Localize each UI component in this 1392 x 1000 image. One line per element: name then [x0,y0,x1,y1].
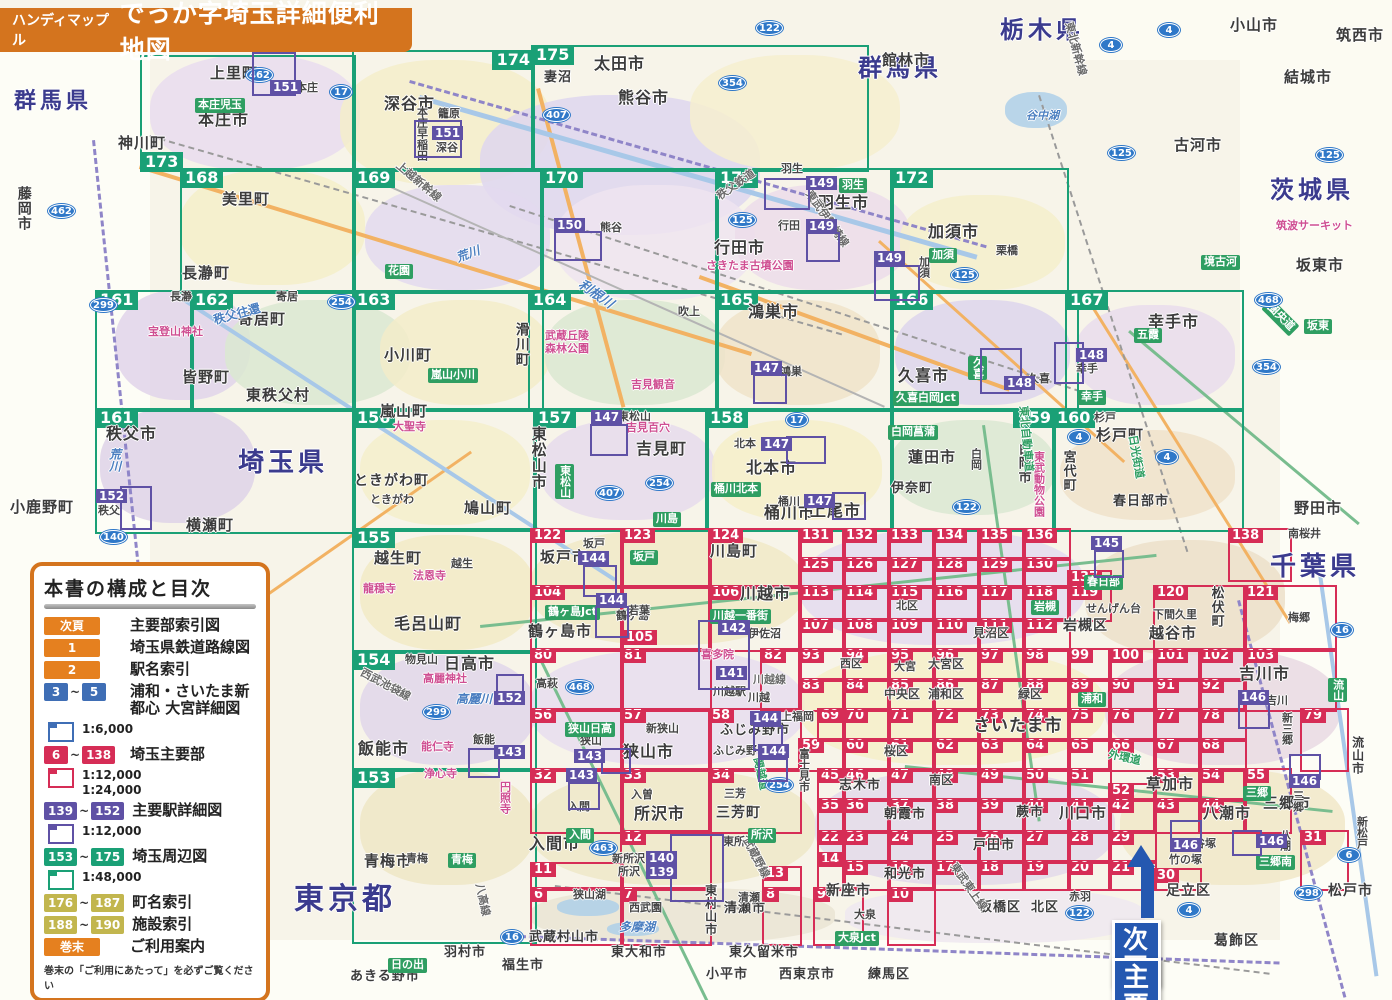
main-map-cell-129[interactable]: 129 [977,557,1026,589]
legend-row: 153~175埼玉周辺図 [44,848,256,866]
station-page-number-151[interactable]: 151 [432,126,463,140]
interchange-badge: 所沢 [748,828,776,843]
map-label: さいたま市 [973,718,1063,736]
main-map-cell-126[interactable]: 126 [842,557,891,589]
station-page-number-143[interactable]: 143 [574,749,605,763]
legend-label: 駅名索引 [130,661,190,678]
main-page-number[interactable]: 30 [1153,868,1179,883]
legend-row: 3~5浦和・さいたま新都心 大宮詳細図 [44,683,256,718]
legend-page-badge[interactable]: 153 [44,848,77,866]
page-frame-icon [48,768,74,788]
map-label: 桶川 [778,496,800,508]
map-label: 赤羽 [1069,891,1091,903]
route-shield: 468 [566,680,593,694]
map-label: 坂戸 [583,538,605,550]
area-page-number[interactable]: 160 [1052,408,1095,428]
map-label: 太田市 [594,56,645,73]
map-label: 杉戸 [1094,412,1116,424]
route-shield: 4 [1178,903,1200,917]
interchange-badge: 境古河 [1201,255,1240,270]
interchange-badge: 三郷南 [1256,855,1295,870]
main-map-cell-68[interactable]: 68 [1198,738,1247,772]
area-map-cell-160[interactable]: 160 [1052,408,1244,532]
main-map-cell-97[interactable]: 97 [977,648,1026,682]
legend-page-badge[interactable]: 5 [82,683,106,701]
map-label: 北区 [896,600,918,612]
station-detail-area-140[interactable] [670,834,724,902]
station-page-number-144[interactable]: 144 [750,711,781,725]
map-label: さきたま古墳公園 [706,260,794,272]
legend-page-badge[interactable]: 187 [91,894,124,912]
map-label: 川島町 [710,544,758,560]
legend-page-badge[interactable]: 152 [91,802,124,820]
map-label: 新松戸 [1356,816,1368,849]
main-page-number[interactable]: 122 [530,528,565,543]
main-map-cell-114[interactable]: 114 [842,585,891,622]
main-map-cell-99[interactable]: 99 [1067,648,1112,682]
main-map-cell-91[interactable]: 91 [1153,678,1202,712]
area-page-number[interactable]: 154 [352,650,395,670]
legend-rows: 次頁主要部索引図1埼玉県鉄道路線図2駅名索引3~5浦和・さいたま新都心 大宮詳細… [44,617,256,956]
map-label: 森林公園 [545,343,589,355]
main-page-number[interactable]: 138 [1228,528,1263,543]
map-label: 伊奈町 [891,482,933,496]
map-label: 東秩父村 [246,388,310,404]
legend-page-badge[interactable]: 176 [44,894,77,912]
station-detail-area-147[interactable] [753,374,787,404]
map-label: 志木市 [839,779,881,793]
main-map-cell-28[interactable]: 28 [1067,830,1112,864]
map-label: 野田市 [1294,501,1342,517]
map-label: 富士見市 [798,748,810,792]
main-map-cell-8[interactable]: 8 [762,887,802,946]
station-page-number-147[interactable]: 147 [591,410,622,424]
map-label: 古河市 [1174,138,1222,154]
map-label: ときがわ [370,494,414,506]
map-label: ときがわ町 [354,474,429,489]
legend-page-badge[interactable]: 175 [91,848,124,866]
area-page-number[interactable]: 169 [352,168,395,188]
interchange-badge: 白岡菖蒲 [888,425,938,440]
map-label: 大泉 [854,909,876,921]
legend-page-badge[interactable]: 190 [91,916,124,934]
map-label: 羽生 [781,163,803,175]
map-label: 所沢 [618,866,640,878]
station-page-number-141[interactable]: 141 [716,666,747,680]
interchange-badge: 五霞 [1134,328,1162,343]
area-page-number[interactable]: 174 [492,50,535,70]
map-label: 行田 [778,220,800,232]
map-label: 熊谷市 [618,90,669,107]
main-map-cell-10[interactable]: 10 [887,887,936,946]
station-page-number-142[interactable]: 142 [718,621,749,635]
station-detail-area-149[interactable] [764,178,810,210]
station-page-number-139[interactable]: 139 [646,865,677,879]
main-map-cell-70[interactable]: 70 [842,708,891,742]
legend-scale-row: 1:48,000 [48,870,256,890]
main-map-cell-67[interactable]: 67 [1153,738,1202,772]
station-page-number-145[interactable]: 145 [1091,536,1122,550]
legend-label: 埼玉主要部 [130,746,205,763]
route-shield: 125 [951,268,978,282]
map-label: 久喜市 [898,368,949,385]
area-page-number[interactable]: 172 [890,168,933,188]
map-label: 青梅 [406,853,428,865]
route-shield: 122 [953,500,980,514]
route-shield: 4 [1156,450,1178,464]
main-map-cell-117[interactable]: 117 [977,585,1026,622]
map-label: 秩父 [98,505,120,517]
main-map-cell-57[interactable]: 57 [620,708,712,772]
interchange-badge: 日の出 [388,958,427,973]
map-label: 吉見観音 [631,379,675,391]
main-map-cell-133[interactable]: 133 [887,528,936,561]
main-map-cell-128[interactable]: 128 [932,557,981,589]
area-map-cell-169[interactable]: 169 [352,168,544,294]
main-map-cell-11[interactable]: 11 [530,862,624,891]
main-page-number[interactable]: 123 [620,528,655,543]
legend-title-underline [44,604,256,609]
interchange-badge: 嵐山小川 [428,368,478,383]
legend-page-badge[interactable]: 3 [44,683,68,701]
main-map-cell-125[interactable]: 125 [798,557,846,589]
legend-scale-row: 1:12,000 [48,824,256,844]
map-label: 所沢市 [634,806,685,823]
legend-page-badge[interactable]: 6 [44,746,68,764]
map-label: 西東京市 [779,968,835,982]
legend-page-badge[interactable]: 巻末 [44,938,100,956]
route-shield: 4 [1158,23,1180,37]
main-map-cell-42[interactable]: 42 [1108,798,1157,834]
area-map-cell-165[interactable]: 165 [715,290,894,412]
area-page-number[interactable]: 153 [352,768,395,788]
main-page-number[interactable]: 31 [1300,830,1326,845]
interchange-badge: 三郷 [1243,786,1271,801]
interchange-badge: 浦和 [1078,692,1106,707]
main-map-cell-62[interactable]: 62 [932,738,981,772]
map-label: 大宮区 [928,658,964,671]
main-map-cell-77[interactable]: 77 [1153,708,1202,742]
legend-page-badge[interactable]: 138 [82,746,115,764]
map-label: 桜区 [884,745,908,758]
main-map-cell-135[interactable]: 135 [977,528,1026,561]
map-label: 伊佐沼 [748,628,781,640]
area-page-number[interactable]: 155 [352,528,395,548]
station-page-number-146[interactable]: 146 [1238,690,1269,704]
main-page-number[interactable]: 52 [1108,783,1134,798]
map-region-patch [1240,60,1392,360]
map-label: 西武園 [629,902,662,914]
main-map-cell-51[interactable]: 51 [1067,768,1112,802]
main-map-cell-33[interactable]: 33 [620,768,712,834]
main-map-cell-83[interactable]: 83 [798,678,846,712]
main-map-cell-27[interactable]: 27 [1022,830,1071,864]
main-map-cell-20[interactable]: 20 [1067,860,1112,891]
area-page-number[interactable]: 173 [140,152,183,172]
station-page-number-144[interactable]: 144 [578,551,609,565]
map-label: 蕨市 [1016,806,1044,820]
area-map-cell-175[interactable]: 175 [531,45,869,172]
main-map-cell-54[interactable]: 54 [1198,768,1247,802]
main-map-cell-71[interactable]: 71 [887,708,936,742]
map-label: 蓮田市 [908,450,956,466]
area-page-number[interactable]: 170 [540,168,583,188]
legend-label: 主要部索引図 [130,617,220,634]
map-label: 長瀞町 [182,266,230,282]
main-map-cell-23[interactable]: 23 [842,830,891,864]
main-map-cell-65[interactable]: 65 [1067,738,1112,772]
station-detail-area-150[interactable] [554,231,602,261]
main-map-cell-132[interactable]: 132 [842,528,891,561]
map-label: 浄心寺 [424,768,457,780]
legend-scale: 1:12,000 [82,824,141,839]
map-label: 日高市 [444,656,495,673]
area-page-number[interactable]: 162 [190,290,233,310]
route-shield: 122 [756,21,783,35]
station-page-number-147[interactable]: 147 [761,437,792,451]
main-map-cell-24[interactable]: 24 [887,830,936,864]
legend-page-badge[interactable]: 188 [44,916,77,934]
up-arrow-icon [1127,845,1155,867]
map-label: 藤岡市 [16,186,31,231]
interchange-badge: 加須 [929,248,957,263]
station-page-number-149[interactable]: 149 [806,219,837,233]
main-page-number[interactable]: 133 [887,528,922,543]
main-map-cell-90[interactable]: 90 [1108,678,1157,712]
route-shield: 140 [100,530,127,544]
main-map-cell-63[interactable]: 63 [977,738,1026,772]
legend-box: 本書の構成と目次 次頁主要部索引図1埼玉県鉄道路線図2駅名索引3~5浦和・さいた… [30,562,270,1000]
map-label: 越生町 [374,551,422,567]
station-page-number-146[interactable]: 146 [1170,838,1201,852]
station-page-number-149[interactable]: 149 [806,176,837,190]
legend-page-badge[interactable]: 2 [44,661,100,679]
legend-label: 埼玉周辺図 [132,848,207,865]
station-page-number-144[interactable]: 144 [596,593,627,607]
map-label: 川越市 [740,586,791,603]
station-page-number-151[interactable]: 151 [270,80,301,94]
map-label: 神川町 [118,136,166,152]
legend-scale-row: 1:6,000 [48,722,256,742]
area-page-number[interactable]: 157 [533,408,576,428]
main-map-cell-131[interactable]: 131 [798,528,846,561]
interchange-badge: 羽生 [839,178,867,193]
map-label: 南桜井 [1288,528,1321,540]
main-page-number[interactable]: 132 [842,528,877,543]
route-shield: 4 [1100,38,1122,52]
station-page-number-144[interactable]: 144 [758,744,789,758]
map-label: 和光市 [884,868,926,882]
legend-title: 本書の構成と目次 [44,574,256,601]
main-page-number[interactable]: 120 [1153,585,1188,600]
route-shield: 407 [596,486,623,500]
main-map-cell-98[interactable]: 98 [1022,648,1071,682]
station-detail-area-149[interactable] [874,265,920,301]
main-map-cell-75[interactable]: 75 [1067,708,1112,742]
map-label: 西区 [840,658,862,670]
main-page-number[interactable]: 121 [1243,585,1278,600]
map-label: 長瀞 [170,291,192,303]
station-page-number-146[interactable]: 146 [1289,774,1320,788]
map-label: 東松山市 [530,426,546,490]
map-label: 武蔵丘陵 [545,330,589,342]
station-page-number-150[interactable]: 150 [554,218,585,232]
main-page-number[interactable]: 136 [1022,528,1057,543]
map-label: 北区 [1031,901,1059,915]
main-map-cell-76[interactable]: 76 [1108,708,1157,742]
main-page-number[interactable]: 131 [798,528,833,543]
station-page-number-152[interactable]: 152 [494,691,525,705]
station-detail-area-146[interactable] [1238,703,1270,729]
main-page-number[interactable]: 134 [932,528,967,543]
main-map-cell-109[interactable]: 109 [887,618,936,652]
station-page-number-147[interactable]: 147 [751,361,782,375]
main-map-cell-130[interactable]: 130 [1022,557,1071,589]
map-label: 滑川町 [514,322,529,367]
map-label: 高萩 [536,678,558,690]
range-tilde: ~ [79,918,89,932]
main-map-cell-100[interactable]: 100 [1108,648,1157,682]
main-map-cell-127[interactable]: 127 [887,557,936,589]
area-page-number[interactable]: 175 [531,45,574,65]
route-shield: 16 [1331,623,1353,637]
map-label: 茨城県 [1270,178,1354,203]
legend-page-badge[interactable]: 1 [44,639,100,657]
main-map-cell-107[interactable]: 107 [798,618,846,652]
map-label: 春日部市 [1113,495,1169,509]
route-shield: 354 [719,76,746,90]
legend-scale: 1:48,000 [82,870,141,885]
area-page-number[interactable]: 168 [180,168,223,188]
station-page-number-147[interactable]: 147 [804,494,835,508]
map-label: 埼玉県 [238,450,328,477]
map-label: 嵐山町 [380,404,428,420]
route-shield: 125 [1316,148,1343,162]
station-detail-area-147[interactable] [590,424,628,456]
legend-label: ご利用案内 [130,938,205,955]
legend-row: 巻末ご利用案内 [44,938,256,956]
page-title: でっか字埼玉詳細便利地図 [120,0,400,66]
map-label: 荒川 [108,448,121,472]
map-label: 上福岡 [781,711,814,723]
map-label: 羽村市 [444,946,486,960]
station-page-number-146[interactable]: 146 [1256,834,1287,848]
station-page-number-140[interactable]: 140 [646,851,677,865]
map-label: 筑波サーキット [1276,220,1353,232]
legend-row: 188~190施設索引 [44,916,256,934]
interchange-badge: 本庄児玉 [195,98,245,113]
map-label: 龍穏寺 [363,583,396,595]
station-page-number-149[interactable]: 149 [874,251,905,265]
map-label: 朝霞市 [884,808,926,822]
next-page-index-button[interactable]: 主要部索引図 [1112,958,1161,1000]
area-page-number[interactable]: 163 [352,290,395,310]
station-detail-area-145[interactable] [1094,550,1124,578]
map-label: 館林市 [882,53,930,69]
map-label: 梅郷 [1288,612,1310,624]
area-page-number[interactable]: 167 [1065,290,1108,310]
map-label: 飯能 [473,734,495,746]
map-label: 栗橋 [996,245,1018,257]
main-page-number[interactable]: 100 [1108,648,1143,663]
main-page-number[interactable]: 124 [708,528,743,543]
interchange-badge: 流山 [1328,678,1347,702]
main-map-cell-113[interactable]: 113 [798,585,846,622]
map-label: 見沼区 [973,627,1009,640]
route-shield: 462 [48,204,75,218]
station-detail-area-143[interactable] [601,748,631,774]
page-frame-icon [48,870,74,890]
main-map-cell-18[interactable]: 18 [977,860,1026,891]
main-map-cell-136[interactable]: 136 [1022,528,1071,561]
page-frame-icon [48,824,74,844]
station-detail-area-149[interactable] [806,232,840,262]
map-label: 三郷 [1292,790,1304,812]
map-label: 吹上 [678,306,700,318]
station-page-number-143[interactable]: 143 [566,768,597,782]
main-map-cell-49[interactable]: 49 [977,768,1026,802]
main-map-cell-134[interactable]: 134 [932,528,981,561]
interchange-badge: 岩槻 [1031,600,1059,615]
range-tilde: ~ [79,896,89,910]
station-page-number-148[interactable]: 148 [1076,348,1107,362]
legend-row: 139~152主要駅詳細図 [44,802,256,820]
map-label: 高麗神社 [423,673,467,685]
main-map-cell-19[interactable]: 19 [1022,860,1071,891]
main-map-cell-101[interactable]: 101 [1153,648,1202,682]
station-detail-area-143[interactable] [568,782,600,810]
main-page-number[interactable]: 135 [977,528,1012,543]
main-map-cell-50[interactable]: 50 [1022,768,1071,802]
main-page-number[interactable]: 11 [530,862,556,877]
legend-page-badge[interactable]: 139 [44,802,77,820]
legend-label: 埼玉県鉄道路線図 [130,639,250,656]
interchange-badge: 青梅 [448,853,476,868]
interchange-badge: 入間 [566,828,594,843]
map-label: 入曽 [631,789,653,801]
area-page-number[interactable]: 164 [528,290,571,310]
legend-page-badge[interactable]: 次頁 [44,617,100,635]
station-detail-area-147[interactable] [832,492,866,520]
map-label: 川越 [748,692,770,704]
map-label: 中央区 [884,688,920,701]
station-page-number-143[interactable]: 143 [494,745,525,759]
main-map-cell-108[interactable]: 108 [842,618,891,652]
map-label: 美里町 [222,192,270,208]
map-label: 狭山湖 [573,889,606,901]
map-label: 下間久里 [1153,609,1197,621]
map-label: 結城市 [1284,70,1332,86]
station-detail-area-144[interactable] [595,606,629,638]
area-page-number[interactable]: 158 [705,408,748,428]
map-label: 新座市 [826,884,871,899]
station-page-number-152[interactable]: 152 [96,489,127,503]
main-map-cell-38[interactable]: 38 [932,798,981,834]
main-map-cell-64[interactable]: 64 [1022,738,1071,772]
map-label: 高麗川 [456,693,492,706]
map-label: 川口市 [1059,806,1107,822]
main-map-cell-116[interactable]: 116 [932,585,981,622]
main-map-cell-93[interactable]: 93 [798,648,846,682]
route-shield: 17 [330,85,352,99]
legend-row: 176~187町名索引 [44,894,256,912]
station-page-number-148[interactable]: 148 [1004,376,1035,390]
route-shield: 17 [786,413,808,427]
map-label: 岩槻区 [1063,619,1108,634]
range-tilde: ~ [70,748,80,762]
station-detail-area-144[interactable] [758,758,788,782]
map-label: 坂東市 [1296,258,1344,274]
